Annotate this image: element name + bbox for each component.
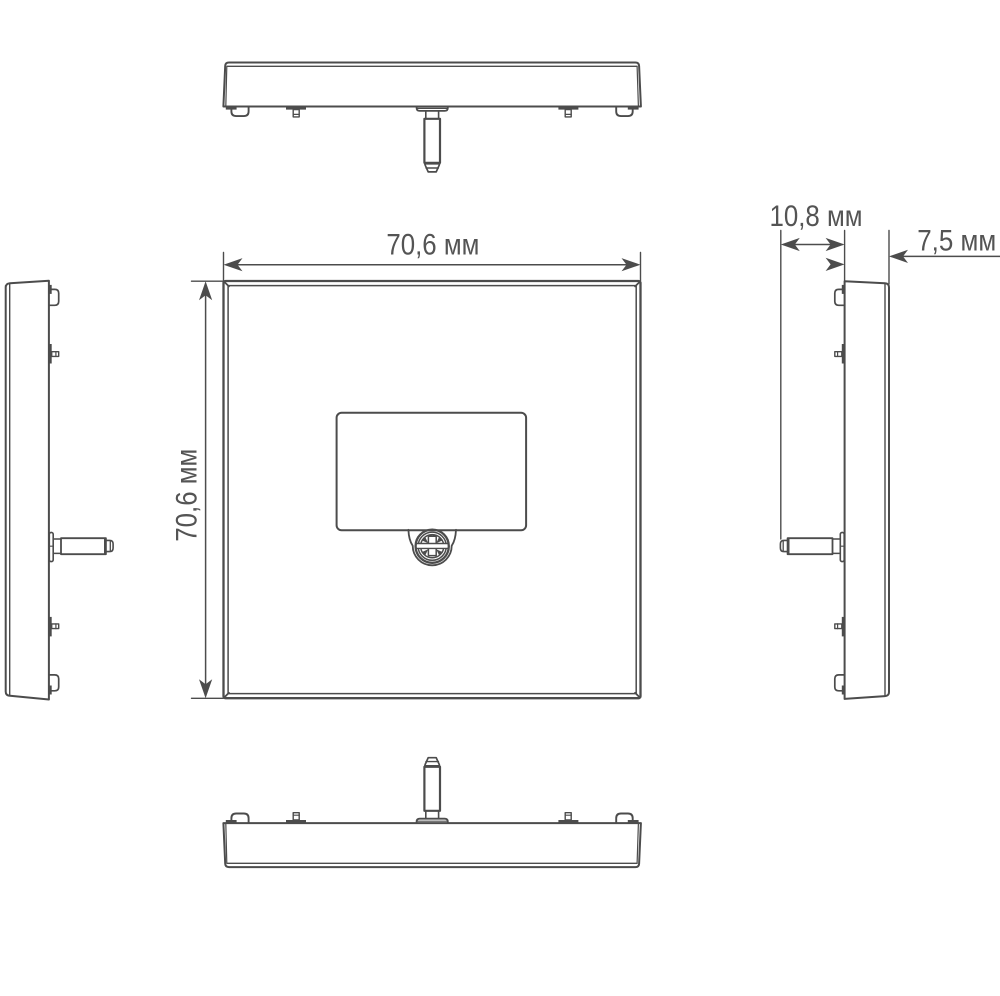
svg-text:10,8 мм: 10,8 мм <box>770 200 863 233</box>
svg-text:70,6 мм: 70,6 мм <box>171 449 204 542</box>
svg-text:70,6 мм: 70,6 мм <box>386 229 479 262</box>
svg-text:7,5 мм: 7,5 мм <box>917 224 996 257</box>
